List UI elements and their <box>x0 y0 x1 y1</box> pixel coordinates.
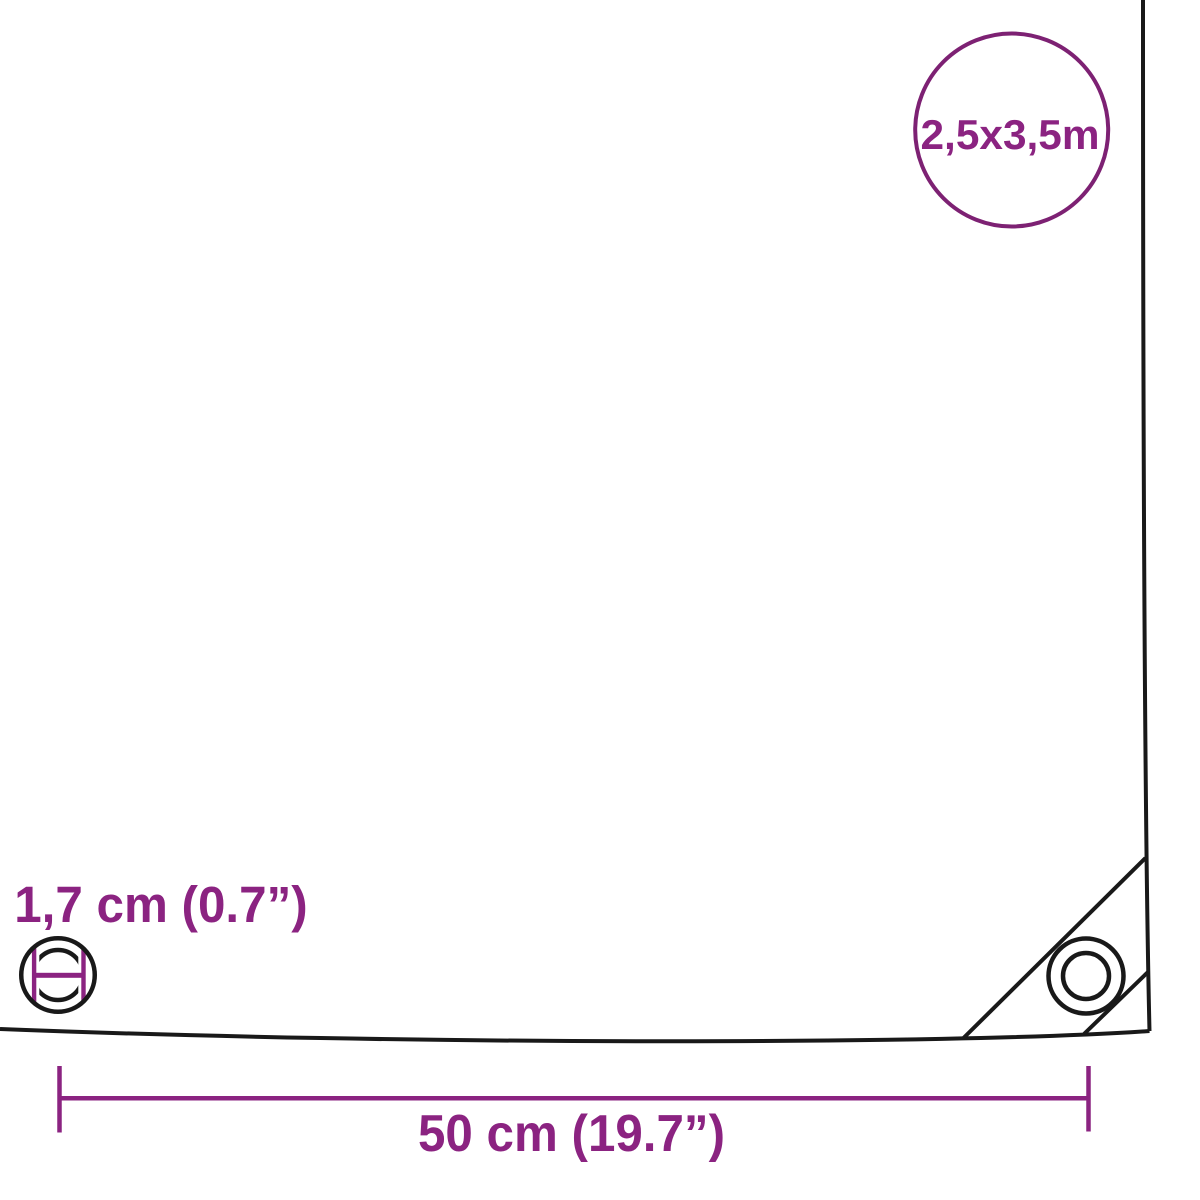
svg-text:1,7 cm (0.7”): 1,7 cm (0.7”) <box>14 876 308 933</box>
svg-text:2,5x3,5m: 2,5x3,5m <box>921 111 1100 158</box>
svg-text:50 cm (19.7”): 50 cm (19.7”) <box>418 1104 725 1162</box>
